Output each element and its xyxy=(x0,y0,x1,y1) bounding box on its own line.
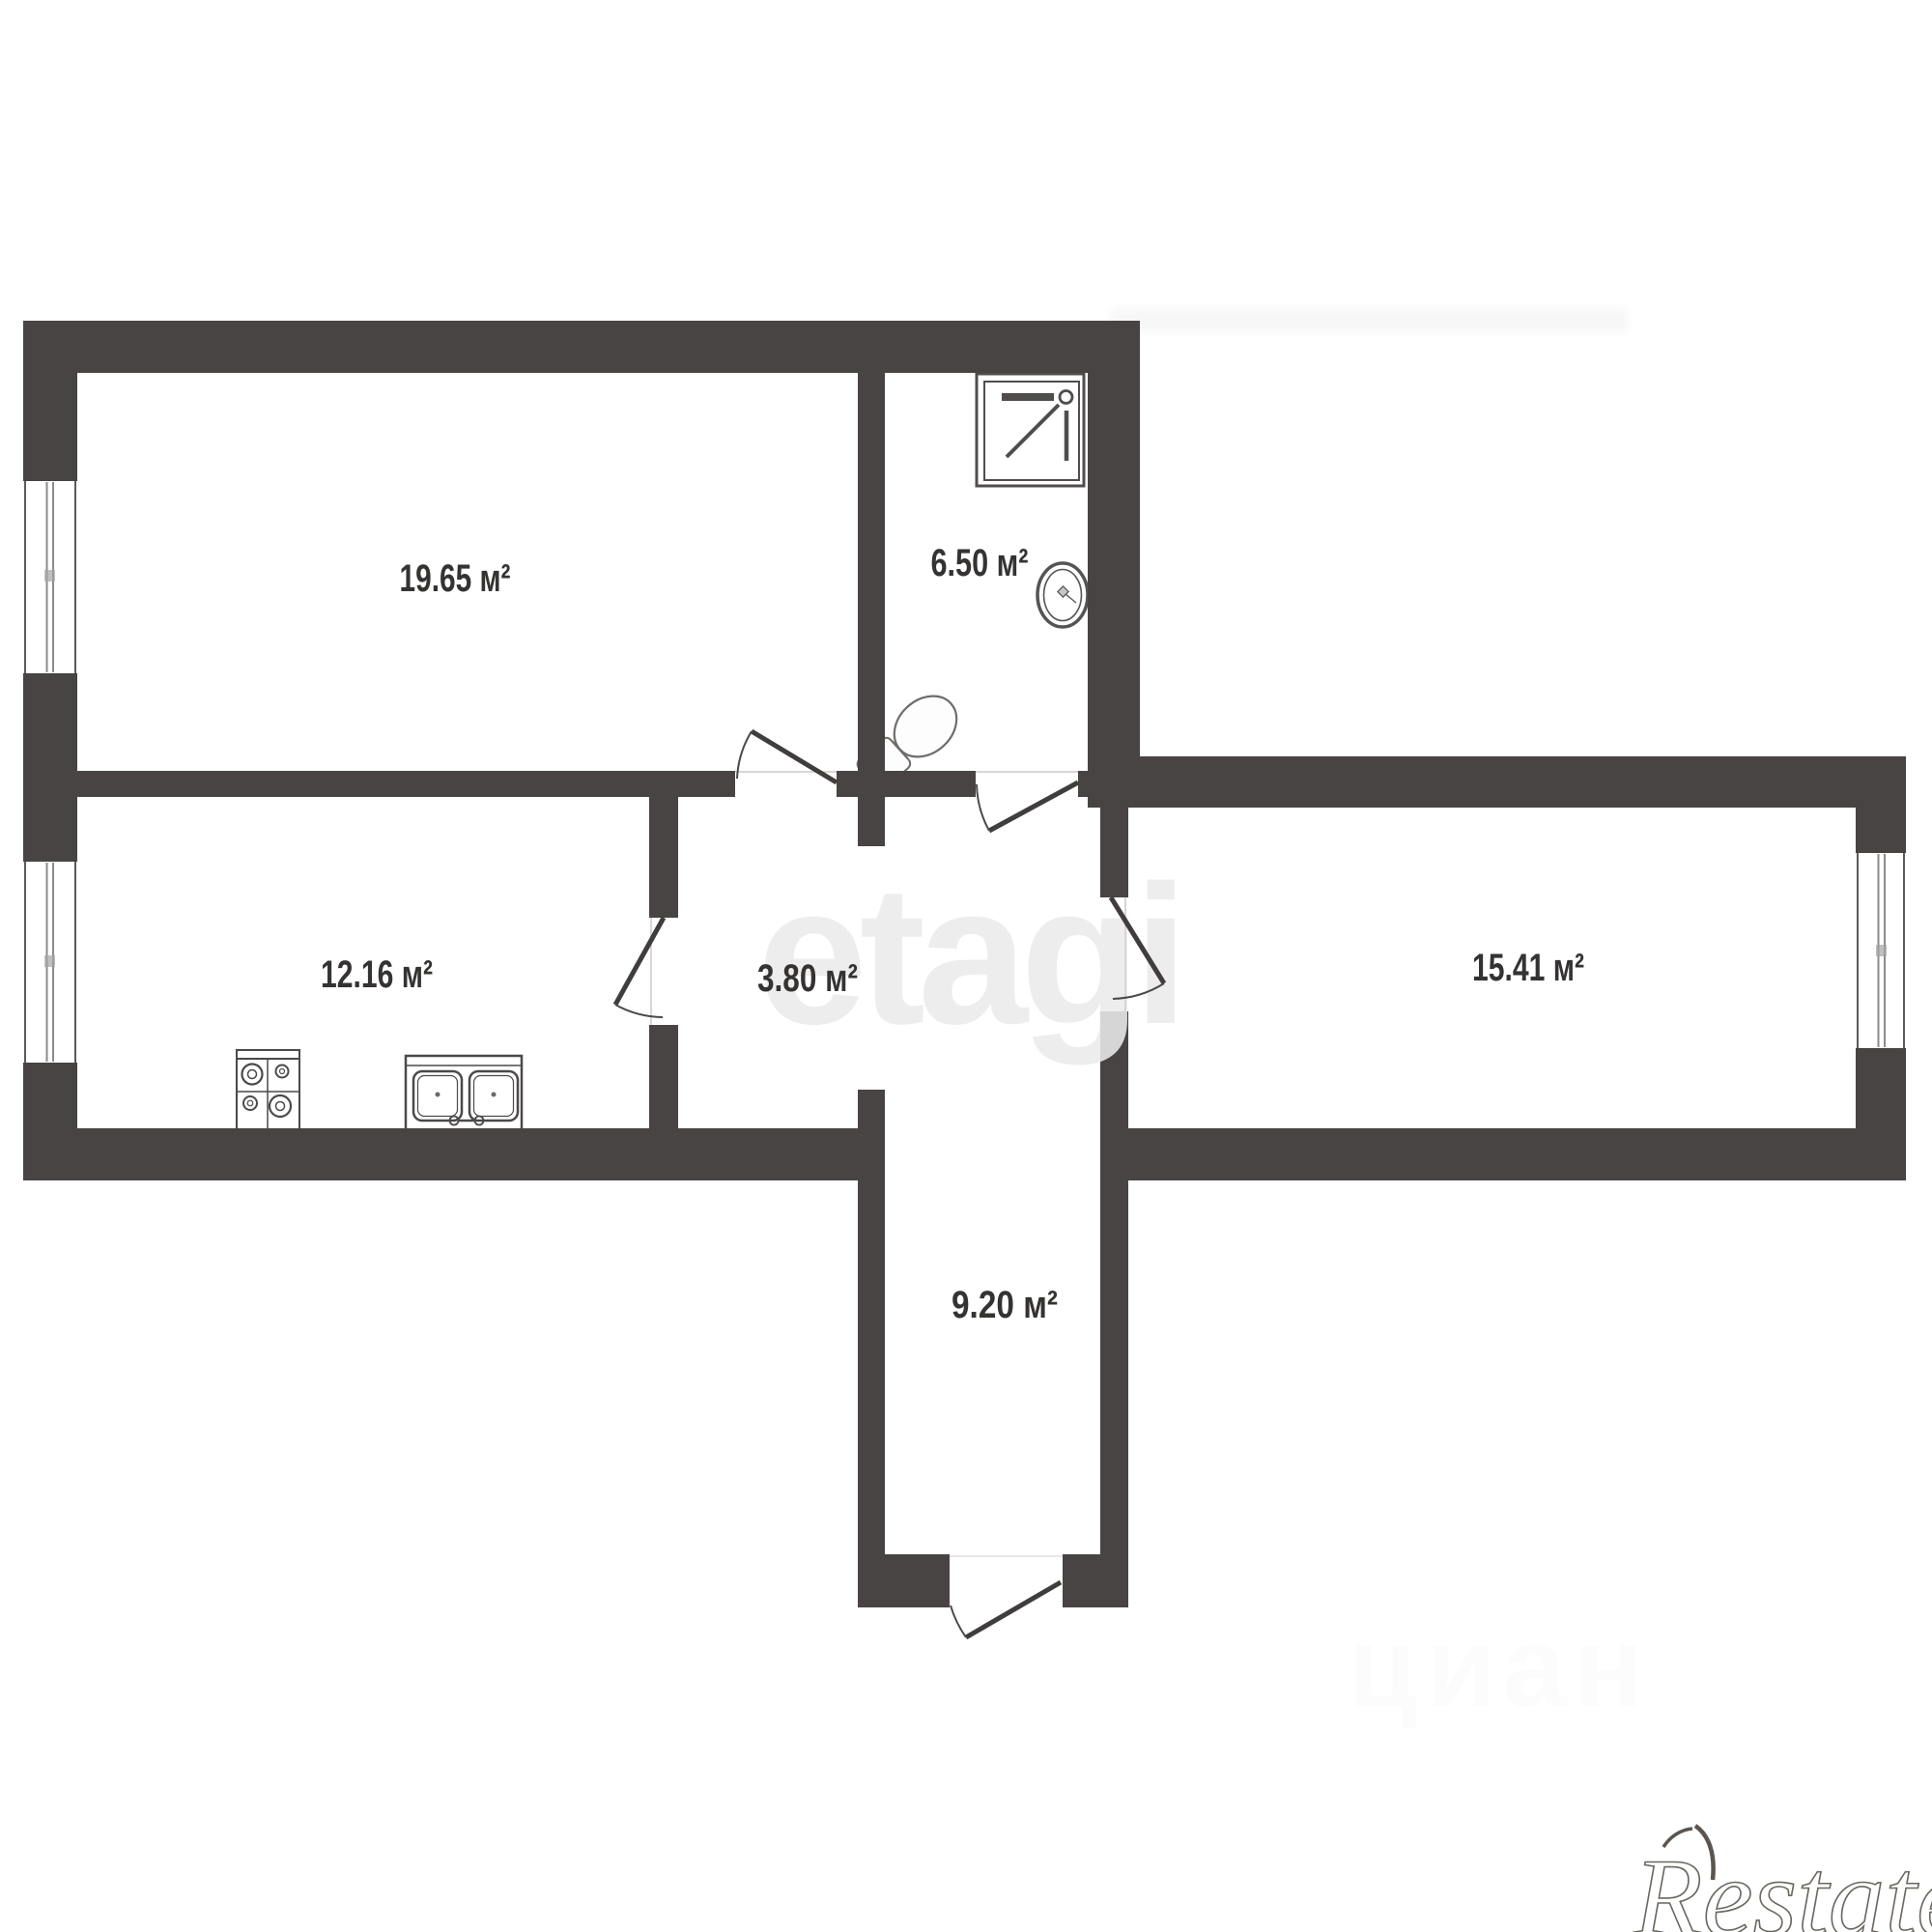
svg-text:циан: циан xyxy=(1348,1604,1651,1731)
svg-text:3.80 м²: 3.80 м² xyxy=(757,957,858,1000)
svg-text:15.41 м²: 15.41 м² xyxy=(1472,947,1584,989)
svg-text:Restate: Restate xyxy=(1633,1836,1932,1932)
svg-text:19.65 м²: 19.65 м² xyxy=(400,557,511,600)
svg-text:etagi: etagi xyxy=(757,844,1180,1065)
svg-text:12.16 м²: 12.16 м² xyxy=(321,953,433,996)
svg-text:6.50 м²: 6.50 м² xyxy=(931,542,1029,584)
svg-text:9.20 м²: 9.20 м² xyxy=(952,1284,1058,1326)
